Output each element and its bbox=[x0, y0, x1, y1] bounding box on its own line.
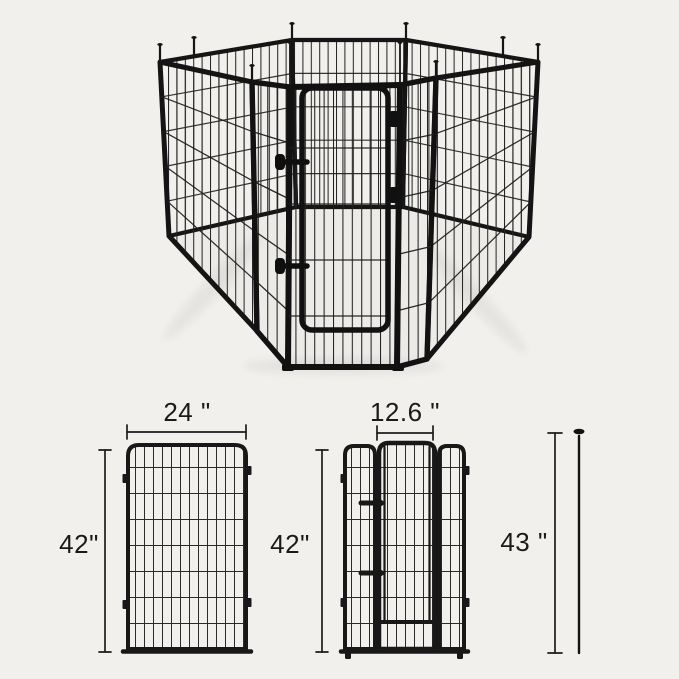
door-hinge-upper bbox=[390, 111, 398, 127]
corner-pin bbox=[157, 43, 162, 62]
corner-pin bbox=[535, 43, 540, 62]
playpen-photo bbox=[157, 22, 540, 374]
pen-gate-panel bbox=[275, 85, 404, 371]
pen-panel-front-left bbox=[252, 82, 290, 367]
gate-foot-left bbox=[282, 364, 294, 371]
corner-pin bbox=[500, 36, 505, 55]
product-image-canvas: 24 " 12.6 " 42" 42" 43 " bbox=[0, 0, 679, 679]
door-hinge-lower bbox=[390, 187, 398, 203]
panel-width-label: 24 " bbox=[127, 399, 247, 426]
pen-panel-front-right bbox=[397, 78, 436, 367]
gate-foot-right bbox=[392, 364, 404, 371]
panel-width-dimension bbox=[127, 425, 246, 439]
playpen-figure bbox=[0, 0, 679, 679]
gate-width-label: 12.6 " bbox=[345, 399, 465, 426]
corner-pin bbox=[289, 22, 294, 40]
corner-pin bbox=[403, 22, 408, 40]
gate-width-dimension bbox=[377, 426, 433, 440]
gate-panel-height-label: 42" bbox=[230, 531, 350, 558]
corner-pin bbox=[191, 36, 196, 55]
panel-height-label: 42" bbox=[19, 531, 139, 558]
gate-panel-front-view bbox=[341, 443, 470, 659]
stake-height-label: 43 " bbox=[464, 529, 584, 556]
